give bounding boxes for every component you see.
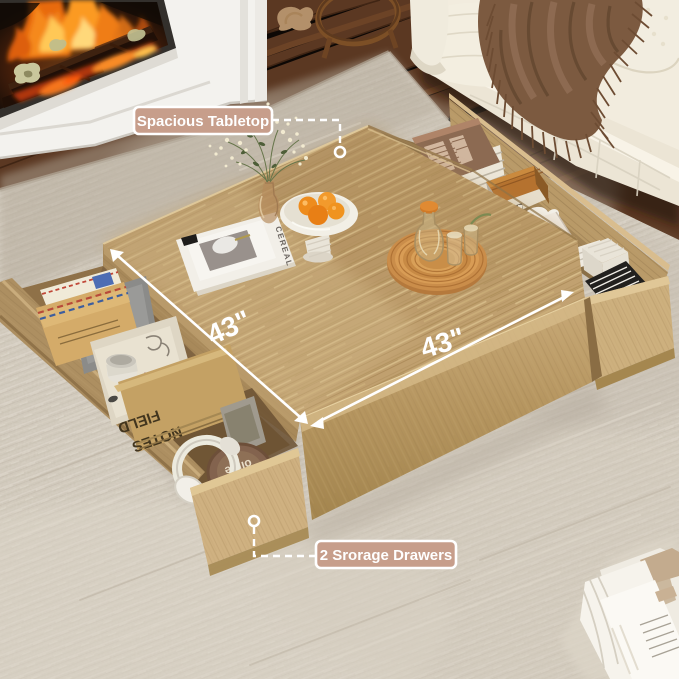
svg-text:2 Srorage Drawers: 2 Srorage Drawers xyxy=(320,547,453,564)
svg-text:Spacious Tabletop: Spacious Tabletop xyxy=(137,113,269,130)
